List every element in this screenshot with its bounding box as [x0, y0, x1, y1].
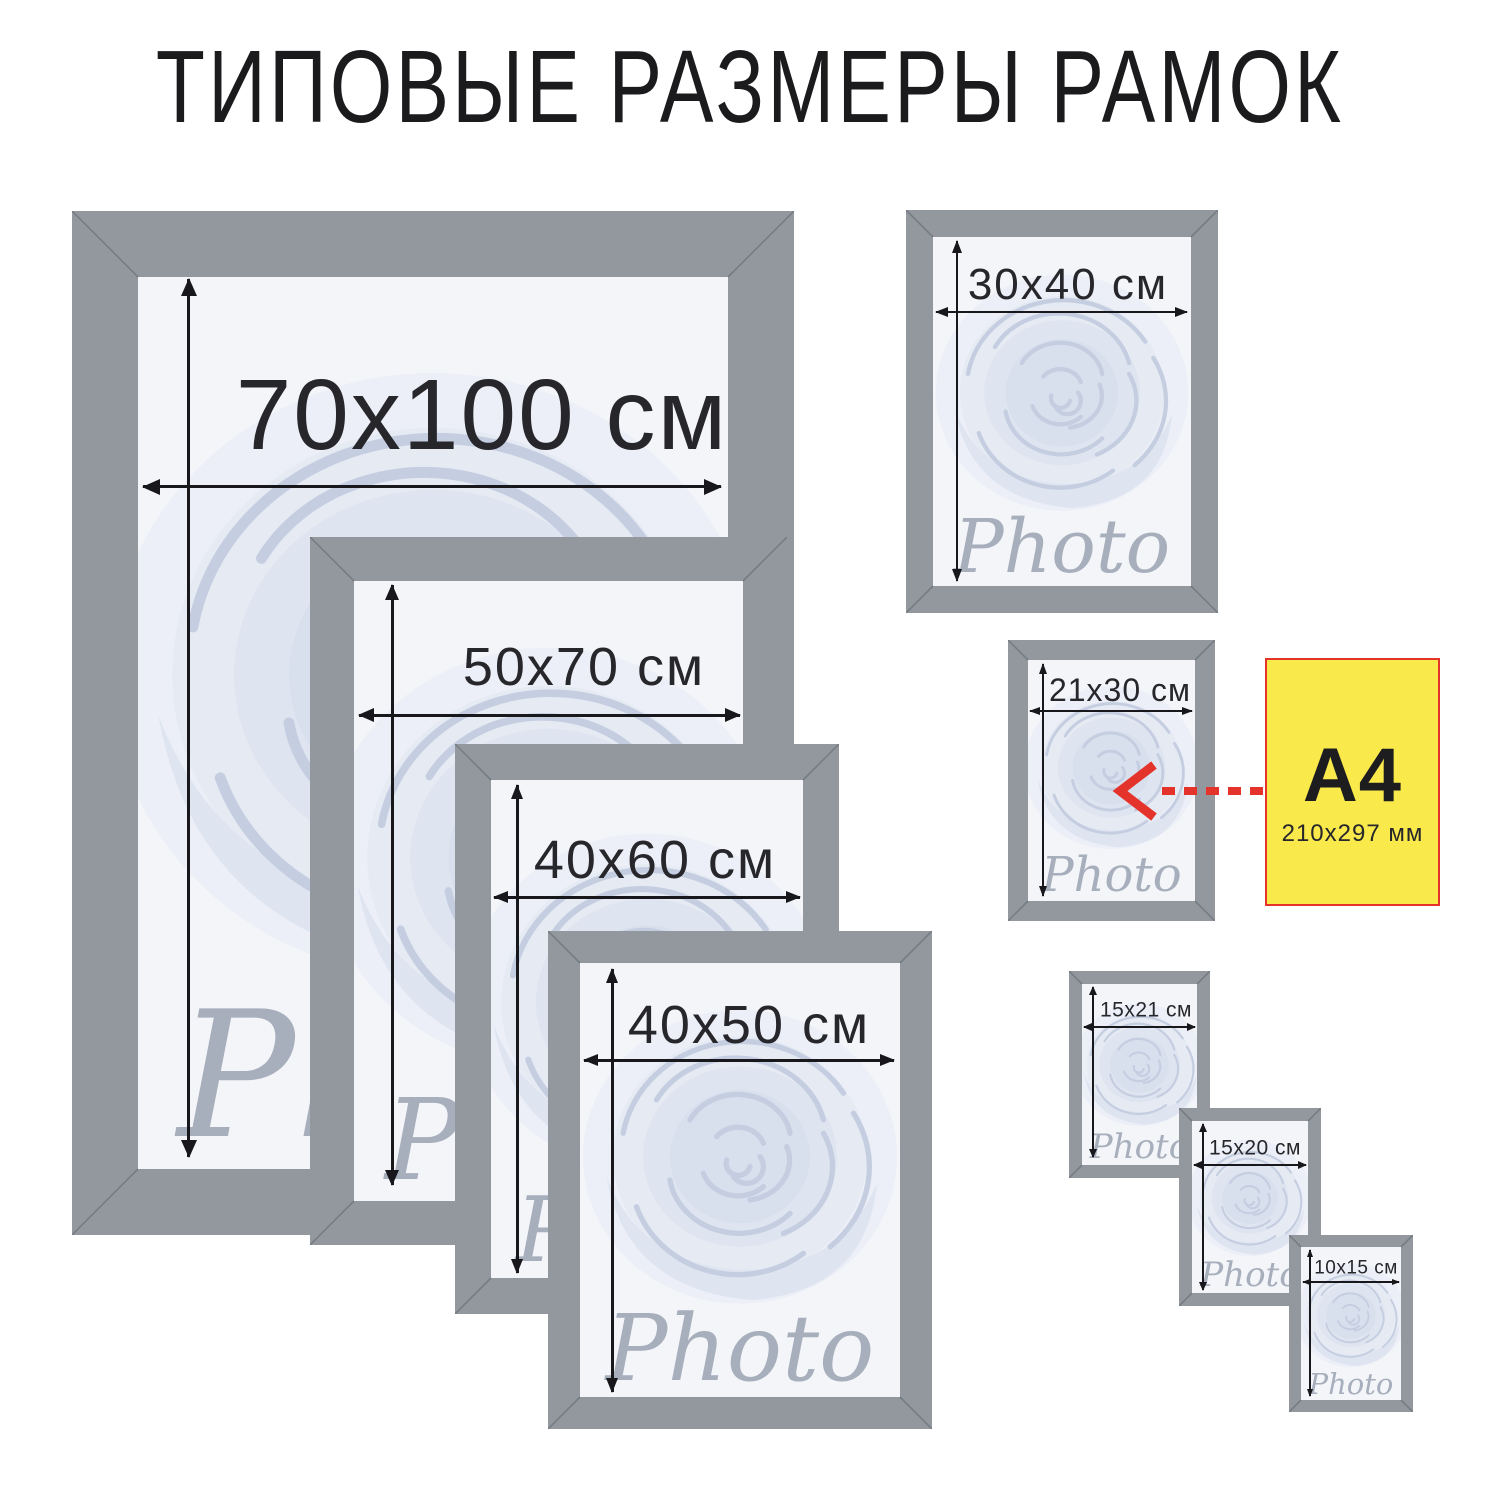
- height-arrow: [1042, 664, 1044, 896]
- height-arrow: [391, 585, 394, 1185]
- photo-watermark: Photo: [933, 512, 1191, 582]
- width-arrow: [359, 714, 740, 717]
- frame-30x40: Photo 30x40 см: [906, 210, 1218, 613]
- a4-size-card: A4 210x297 мм: [1265, 658, 1440, 906]
- width-arrow: [1030, 710, 1192, 712]
- height-arrow: [516, 785, 519, 1273]
- height-arrow: [1092, 987, 1094, 1157]
- height-arrow: [1309, 1250, 1311, 1396]
- a4-pointer-arrow: [1110, 758, 1268, 824]
- photo-watermark: Photo: [1028, 853, 1195, 899]
- size-label: 15x20 см: [1209, 1138, 1301, 1159]
- size-label: 30x40 см: [968, 263, 1168, 307]
- frame-40x50-photo-area: Photo 40x50 см: [580, 963, 900, 1397]
- frame-sizes-infographic: ТИПОВЫЕ РАЗМЕРЫ РАМОК Photo 70x100 см Ph…: [0, 0, 1500, 1500]
- a4-size-title: A4: [1303, 742, 1402, 810]
- width-arrow: [494, 896, 800, 899]
- width-arrow: [936, 311, 1187, 313]
- size-label: 15x21 см: [1100, 1000, 1192, 1021]
- size-label: 70x100 см: [236, 365, 728, 465]
- height-arrow: [956, 241, 958, 581]
- size-label: 10x15 см: [1314, 1259, 1398, 1278]
- size-label: 40x60 см: [534, 833, 776, 887]
- frame-30x40-photo-area: Photo 30x40 см: [933, 237, 1191, 586]
- photo-watermark: Photo: [1301, 1371, 1401, 1399]
- frame-10x15-photo-area: Photo 10x15 см: [1301, 1247, 1401, 1400]
- height-arrow: [187, 279, 190, 1157]
- size-label: 50x70 см: [463, 640, 705, 694]
- height-arrow: [611, 969, 614, 1392]
- photo-watermark: Photo: [580, 1305, 900, 1392]
- width-arrow: [1303, 1281, 1399, 1283]
- size-label: 21x30 см: [1049, 674, 1191, 706]
- frame-10x15: Photo 10x15 см: [1289, 1235, 1413, 1412]
- width-arrow: [1084, 1026, 1195, 1028]
- a4-size-subtitle: 210x297 мм: [1282, 820, 1424, 848]
- width-arrow: [584, 1059, 894, 1062]
- page-title: ТИПОВЫЕ РАЗМЕРЫ РАМОК: [156, 30, 1344, 143]
- frame-40x50: Photo 40x50 см: [548, 931, 932, 1429]
- width-arrow: [1194, 1164, 1306, 1166]
- width-arrow: [143, 485, 721, 488]
- size-label: 40x50 см: [628, 998, 870, 1052]
- height-arrow: [1202, 1124, 1204, 1290]
